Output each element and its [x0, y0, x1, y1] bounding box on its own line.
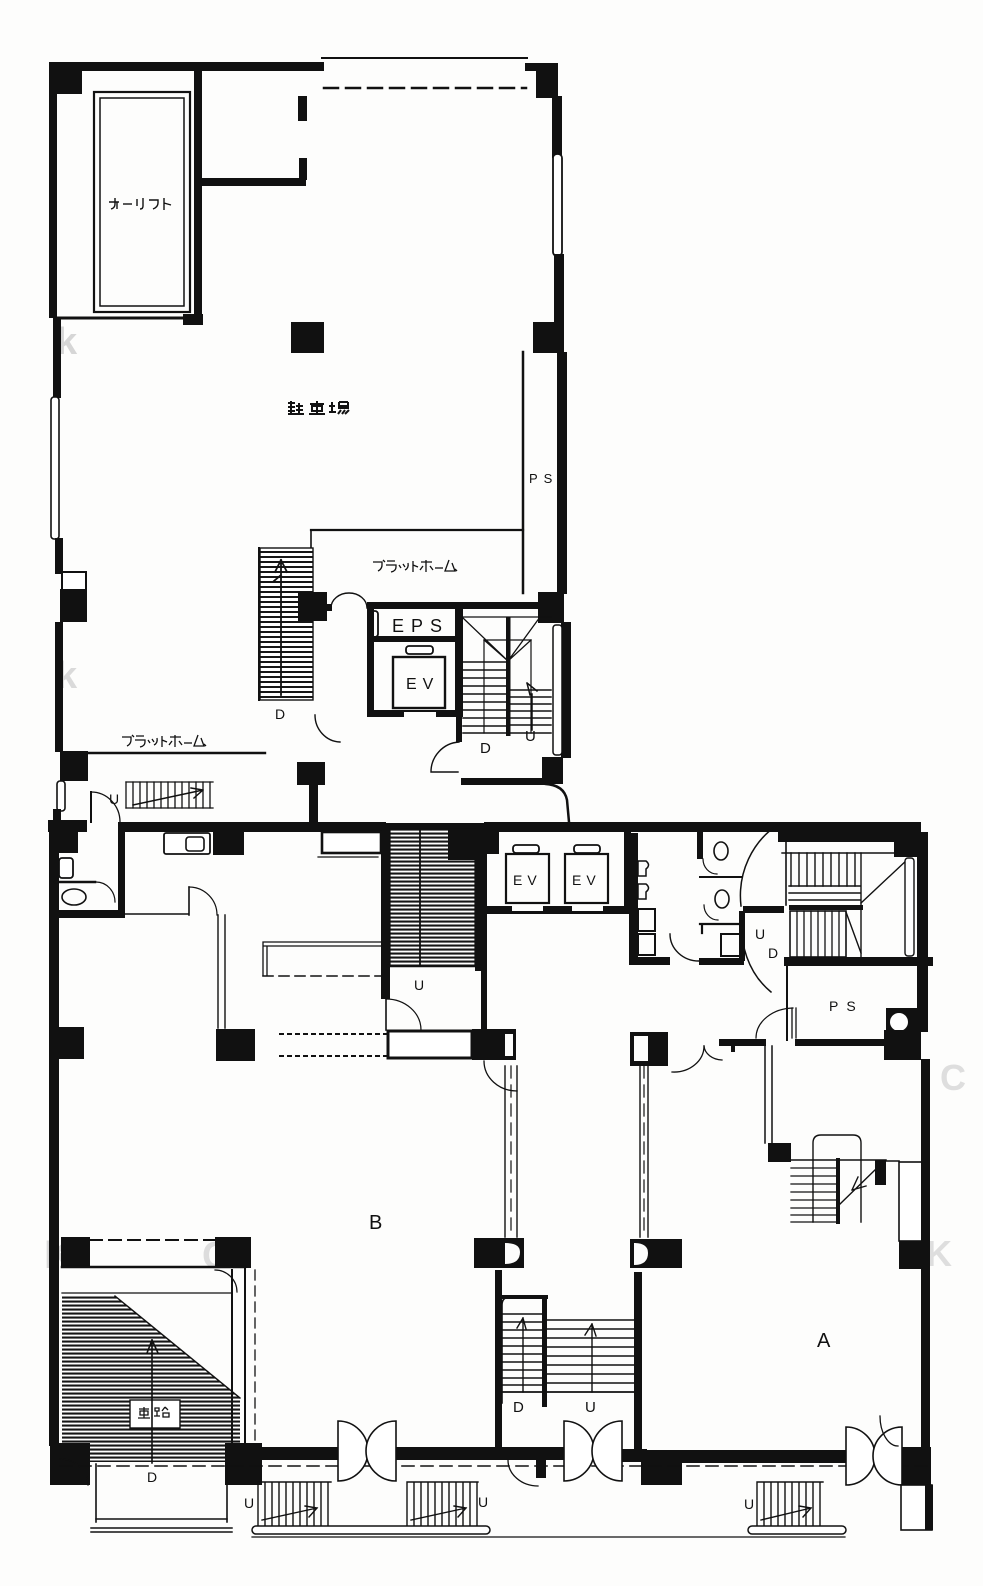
svg-text:D: D: [147, 1469, 157, 1485]
svg-text:U: U: [755, 926, 765, 942]
svg-text:U: U: [109, 791, 119, 807]
svg-text:U: U: [525, 728, 536, 745]
svg-text:D: D: [275, 706, 285, 722]
svg-text:U: U: [414, 977, 424, 993]
svg-text:D: D: [480, 740, 491, 757]
svg-text:U: U: [744, 1496, 754, 1512]
svg-text:U: U: [478, 1494, 488, 1510]
svg-text:C: C: [940, 1057, 966, 1098]
svg-text:U: U: [585, 1399, 596, 1416]
svg-text:PS: PS: [829, 998, 864, 1014]
svg-text:U: U: [244, 1495, 254, 1511]
svg-text:PS: PS: [529, 471, 558, 486]
svg-text:D: D: [768, 945, 778, 961]
svg-text:EPS: EPS: [392, 616, 449, 636]
svg-text:EV: EV: [406, 676, 439, 693]
svg-text:EV: EV: [572, 872, 601, 888]
svg-text:D: D: [513, 1399, 524, 1416]
svg-text:EV: EV: [513, 872, 542, 888]
svg-text:A: A: [817, 1330, 831, 1352]
svg-text:B: B: [369, 1212, 382, 1234]
